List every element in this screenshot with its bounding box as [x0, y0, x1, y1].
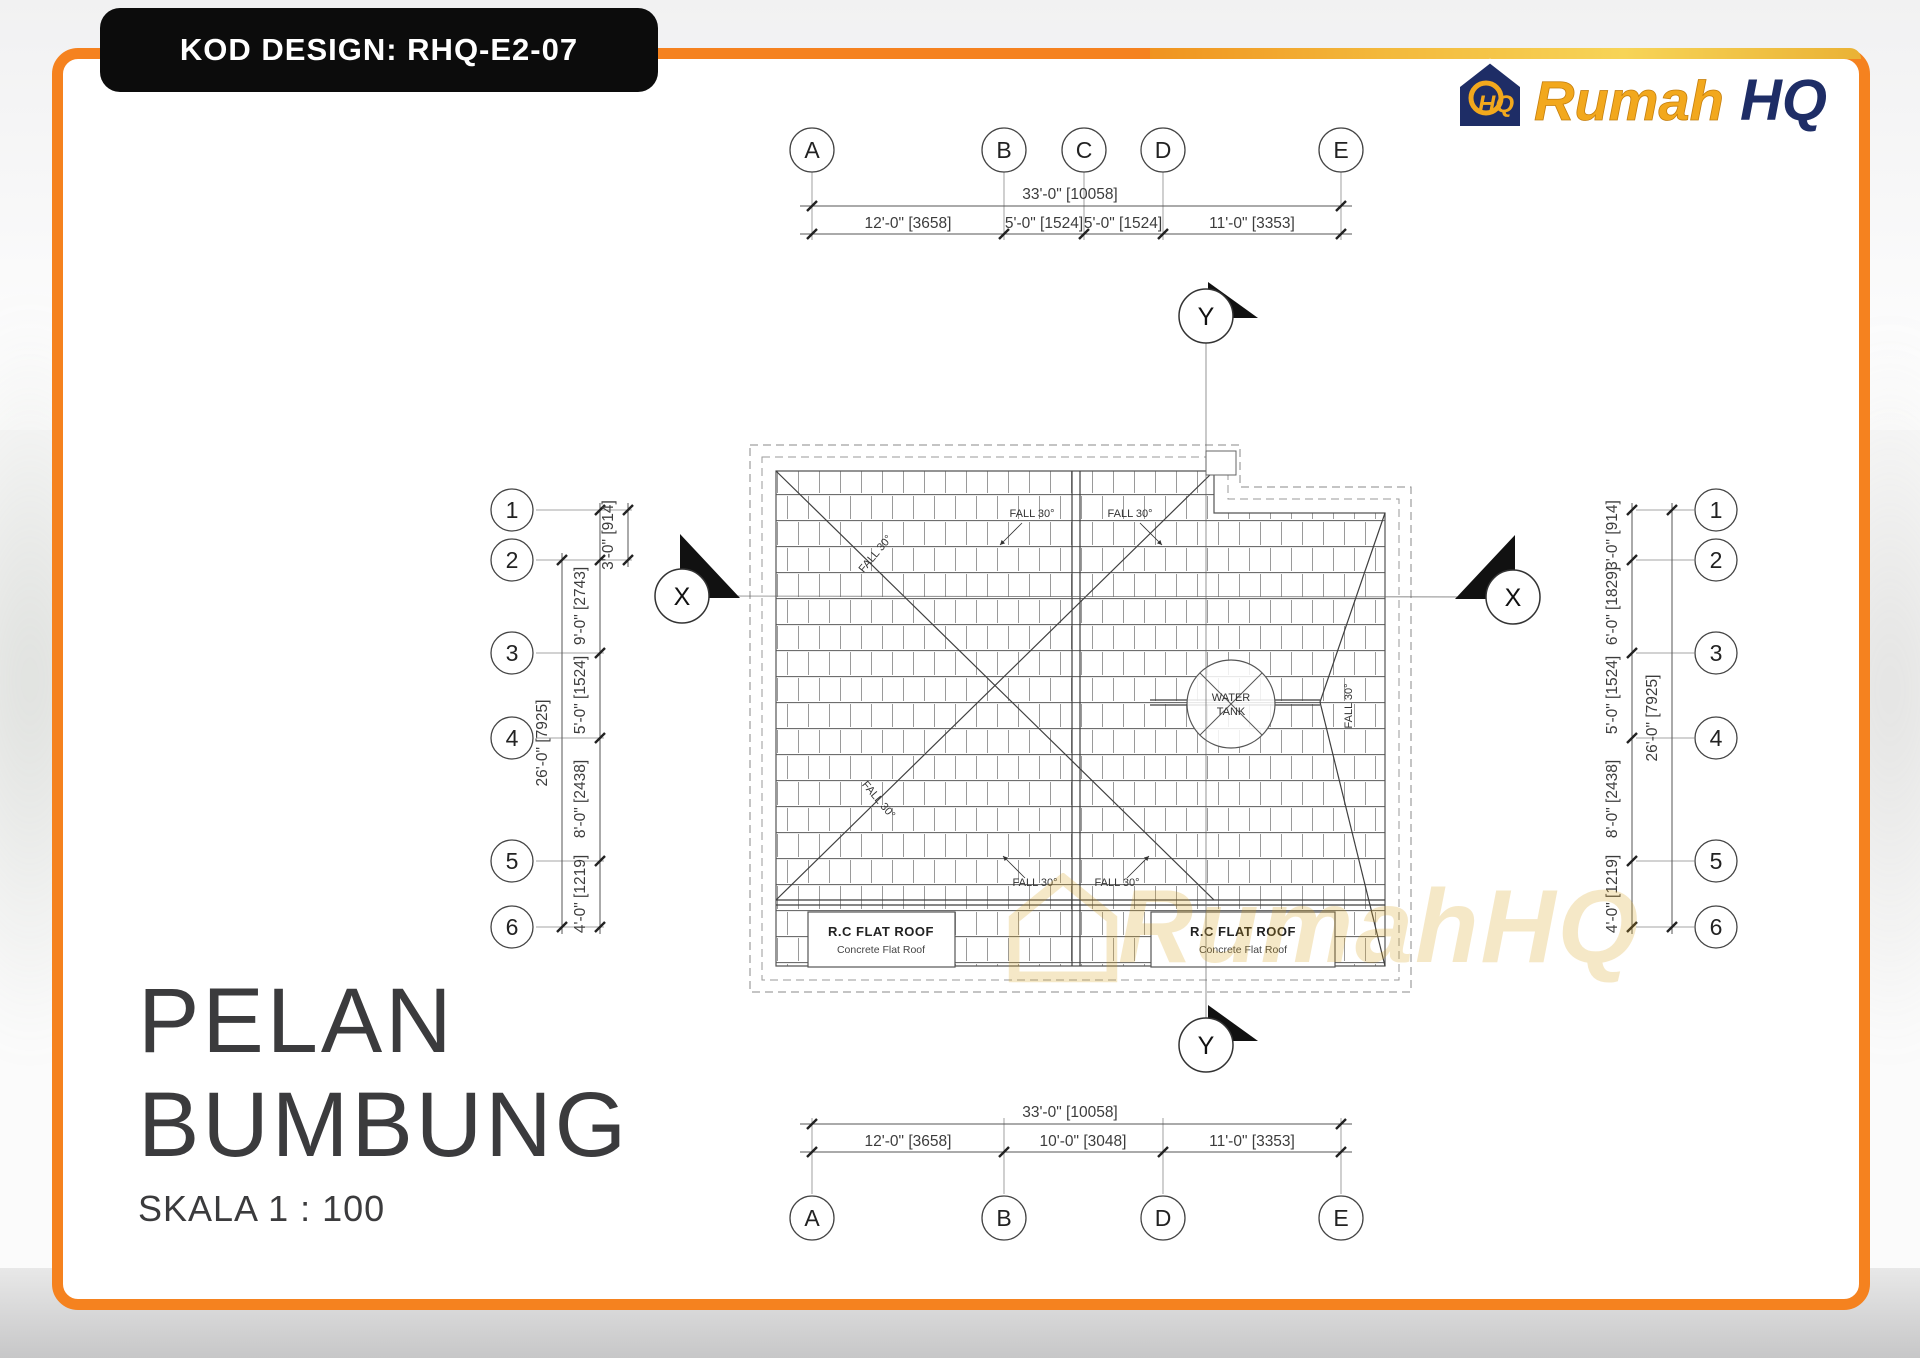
section-marker-y-top: Y [1179, 282, 1258, 343]
section-y-label: Y [1198, 1032, 1215, 1060]
water-tank-label-1: WATER [1212, 692, 1251, 704]
grid-bubble-b-top: B [996, 137, 1011, 163]
section-x-label: X [1505, 584, 1522, 612]
section-marker-x-left: X [655, 534, 740, 623]
roof-notch [1206, 451, 1236, 475]
grid-bubble-6-left: 6 [506, 914, 519, 940]
right-seg-dim-4: 8'-0" [2438] [1604, 760, 1621, 838]
grid-bubble-5-right: 5 [1710, 848, 1723, 874]
fall-label: FALL 30° [1343, 684, 1355, 729]
top-seg-dim-1: 12'-0" [3658] [865, 215, 952, 232]
grid-bubble-d-bottom: D [1155, 1205, 1172, 1231]
section-x-label: X [674, 583, 691, 611]
bottom-grid-bubbles [790, 1196, 1363, 1240]
grid-bubble-2-right: 2 [1710, 547, 1723, 573]
fall-label: FALL 30° [1013, 877, 1058, 889]
title-scale: SKALA 1 : 100 [138, 1188, 629, 1230]
logo-monogram: HQ [1478, 91, 1514, 118]
top-seg-dim-3: 5'-0" [1524] [1084, 215, 1162, 232]
bottom-total-dim: 33'-0" [10058] [1022, 1104, 1118, 1121]
fall-label: FALL 30° [1010, 508, 1055, 520]
water-tank-label-2: TANK [1217, 706, 1246, 718]
grid-bubble-a-bottom: A [804, 1205, 820, 1231]
left-seg-dim-3: 5'-0" [1524] [572, 656, 589, 734]
right-seg-dim-2: 6'-0" [1829] [1604, 567, 1621, 645]
grid-bubble-2-left: 2 [506, 547, 519, 573]
logo-text-hq: HQ [1740, 68, 1827, 133]
section-marker-y-bottom: Y [1179, 1005, 1258, 1072]
bottom-seg-dim-3: 11'-0" [3353] [1209, 1133, 1295, 1150]
left-axis: 26'-0" [7925] 3'-0" [914] 9'-0" [2743] 5… [491, 489, 633, 948]
grid-bubble-4-left: 4 [506, 725, 519, 751]
design-code-badge: KOD DESIGN: RHQ-E2-07 [100, 8, 658, 92]
grid-bubble-5-left: 5 [506, 848, 519, 874]
title-line-1: PELAN [138, 970, 629, 1074]
grid-bubble-3-left: 3 [506, 640, 519, 666]
grid-bubble-6-right: 6 [1710, 914, 1723, 940]
left-seg-dim-2: 9'-0" [2743] [572, 567, 589, 645]
grid-bubble-1-left: 1 [506, 497, 519, 523]
top-seg-dim-2: 5'-0" [1524] [1005, 215, 1083, 232]
right-seg-dim-5: 4'-0" [1219] [1604, 855, 1621, 933]
grid-bubble-e-bottom: E [1333, 1205, 1348, 1231]
fall-label: FALL 30° [1108, 508, 1153, 520]
grid-bubble-a-top: A [804, 137, 820, 163]
grid-bubble-1-right: 1 [1710, 497, 1723, 523]
flat-roof-subtitle: Concrete Flat Roof [1199, 944, 1287, 956]
title-line-2: BUMBUNG [138, 1074, 629, 1178]
grid-bubble-d-top: D [1155, 137, 1172, 163]
right-axis: 3'-0" [914] 6'-0" [1829] 5'-0" [1524] 8'… [1604, 489, 1737, 948]
drawing-sheet: FALL 30° FALL 30° FALL 30° FALL 30° FALL… [0, 0, 1920, 1358]
grid-bubble-4-right: 4 [1710, 725, 1723, 751]
top-seg-dim-4: 11'-0" [3353] [1209, 215, 1295, 232]
logo-house-icon: HQ [1458, 61, 1522, 128]
top-axis: 33'-0" [10058] 12'-0" [3658] 5'-0" [1524… [790, 128, 1363, 240]
design-code-text: KOD DESIGN: RHQ-E2-07 [180, 32, 578, 68]
left-seg-dim-4: 8'-0" [2438] [572, 760, 589, 838]
water-tank-symbol: WATER TANK [1187, 660, 1275, 748]
bottom-seg-dim-1: 12'-0" [3658] [865, 1133, 952, 1150]
logo-text-rumah: Rumah [1534, 69, 1724, 132]
title-block: PELAN BUMBUNG SKALA 1 : 100 [138, 970, 629, 1230]
grid-bubble-b-bottom: B [996, 1205, 1011, 1231]
top-total-dim: 33'-0" [10058] [1022, 186, 1118, 203]
flat-roof-right: R.C FLAT ROOF Concrete Flat Roof [1151, 912, 1335, 967]
left-seg-dim-1: 3'-0" [914] [600, 500, 617, 570]
flat-roof-title: R.C FLAT ROOF [828, 924, 934, 939]
fall-label: FALL 30° [1095, 877, 1140, 889]
grid-bubble-e-top: E [1333, 137, 1348, 163]
grid-bubble-3-right: 3 [1710, 640, 1723, 666]
left-seg-dim-5: 4'-0" [1219] [572, 855, 589, 933]
section-y-label: Y [1198, 303, 1215, 331]
right-total-dim: 26'-0" [7925] [1644, 675, 1661, 762]
flat-roof-left: R.C FLAT ROOF Concrete Flat Roof [808, 912, 955, 967]
grid-bubble-c-top: C [1076, 137, 1093, 163]
flat-roof-subtitle: Concrete Flat Roof [837, 944, 925, 956]
left-total-dim: 26'-0" [7925] [534, 700, 551, 787]
right-seg-dim-1: 3'-0" [914] [1604, 500, 1621, 570]
section-marker-x-right: X [1455, 535, 1540, 624]
right-seg-dim-3: 5'-0" [1524] [1604, 656, 1621, 734]
rumahhq-logo: HQ Rumah HQ [1452, 56, 1882, 147]
dimension-ticks [557, 505, 633, 932]
bottom-axis: 33'-0" [10058] 12'-0" [3658] 10'-0" [304… [790, 1104, 1363, 1240]
bottom-seg-dim-2: 10'-0" [3048] [1040, 1133, 1127, 1150]
